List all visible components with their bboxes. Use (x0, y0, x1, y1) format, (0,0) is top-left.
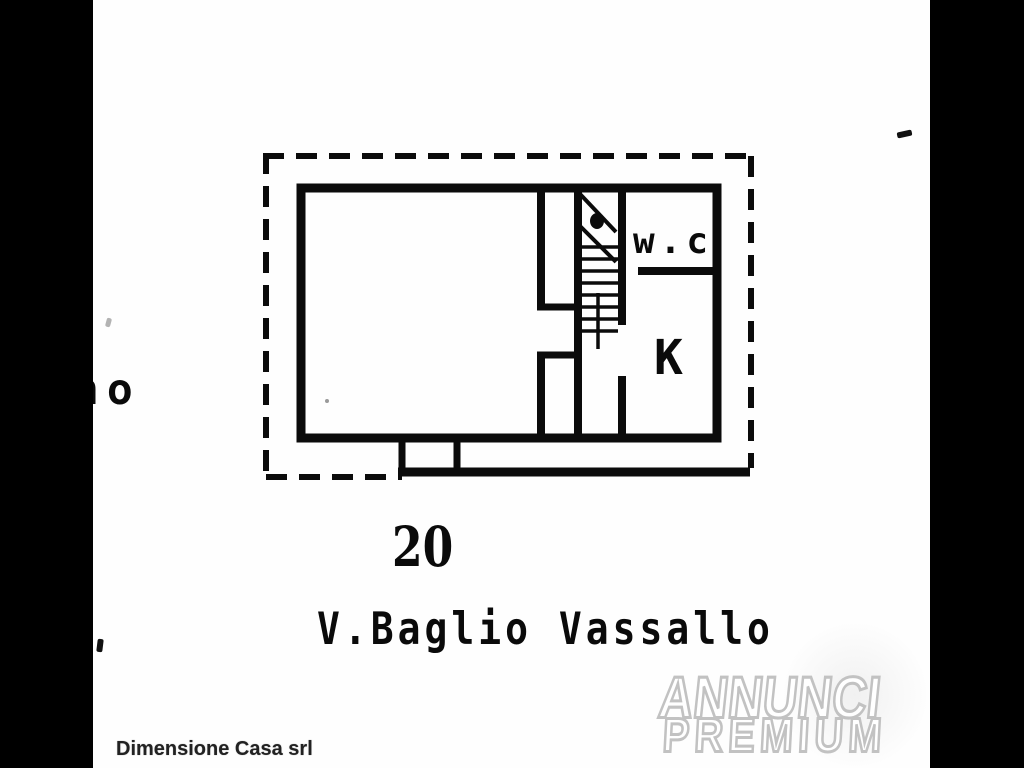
kitchen-room-label: K (654, 334, 683, 382)
street-name-label: V.Baglio Vassallo (317, 606, 774, 651)
wc-room-label: w.c (633, 224, 713, 260)
street-number-label: 20 (392, 521, 453, 576)
entrance-vestibule (402, 438, 457, 470)
right-black-crop-bar (930, 0, 1024, 768)
scan-speck (325, 399, 329, 403)
property-boundary-dashed (263, 153, 753, 481)
watermark-line2: PREMIUM (661, 712, 887, 760)
staircase (580, 194, 618, 349)
left-black-crop-bar (0, 0, 93, 768)
interior-wall-doorway (537, 188, 580, 438)
agency-name-label: Dimensione Casa srl (116, 739, 313, 759)
stair-direction-arrowhead (590, 213, 604, 229)
scanned-page: w.c K 20 V.Baglio Vassallo no Dimensione… (0, 0, 1024, 768)
